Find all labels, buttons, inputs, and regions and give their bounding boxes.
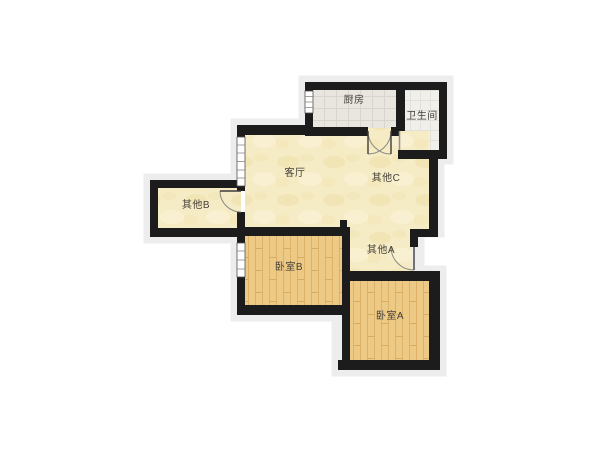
room-label-bathroom: 卫生间 — [406, 109, 438, 122]
living-window-icon — [237, 137, 245, 186]
wall-bathroom-right — [439, 82, 447, 159]
wall-bedroom-b-left-cap-bottom — [237, 277, 245, 315]
wall-kitchen-bath-divider — [396, 82, 405, 131]
wall-bedrooms-left-strip — [342, 227, 350, 370]
wall-living-top — [237, 125, 313, 135]
bedroom-b-window-icon — [237, 243, 245, 277]
room-label-living: 客厅 — [285, 166, 306, 179]
wall-bedroom-a-top — [342, 271, 440, 281]
room-label-bedroom-a: 卧室A — [376, 309, 404, 322]
wall-kitchen-left-cap-top — [305, 82, 313, 91]
kitchen-window-icon — [305, 91, 313, 113]
room-label-other-b: 其他B — [182, 198, 210, 211]
wall-living-left-cap-bottom — [237, 212, 245, 228]
wall-bedroom-b-bottom — [237, 305, 350, 315]
floor-plan-canvas: 厨房 卫生间 客厅 其他C 其他B 其他A 卧室B 卧室A — [0, 0, 600, 450]
wall-other-c-right — [429, 159, 438, 231]
wall-end-nub — [340, 220, 347, 228]
wall-other-b-top — [150, 180, 244, 188]
kitchen-door-threshold — [366, 128, 393, 136]
wall-step-horizontal — [410, 229, 438, 237]
room-label-other-c: 其他C — [372, 171, 401, 184]
wall-kitchen-bottom-left — [305, 127, 368, 136]
floor-plan-drawing: 厨房 卫生间 客厅 其他C 其他B 其他A 卧室B 卧室A — [0, 0, 600, 450]
room-label-other-a: 其他A — [367, 243, 395, 256]
wall-other-b-bottom — [150, 228, 245, 237]
wall-bedroom-a-bottom — [338, 360, 440, 370]
wall-bedroom-a-right — [429, 271, 440, 370]
wall-entry-nub — [410, 237, 418, 247]
wall-bathroom-bottom — [398, 150, 447, 159]
wall-living-left-cap-top — [237, 125, 245, 137]
wall-living-bottom — [237, 227, 348, 236]
room-label-bedroom-b: 卧室B — [275, 260, 303, 273]
room-label-kitchen: 厨房 — [344, 93, 365, 106]
kitchen-floor — [305, 86, 400, 131]
wall-top — [305, 82, 447, 90]
